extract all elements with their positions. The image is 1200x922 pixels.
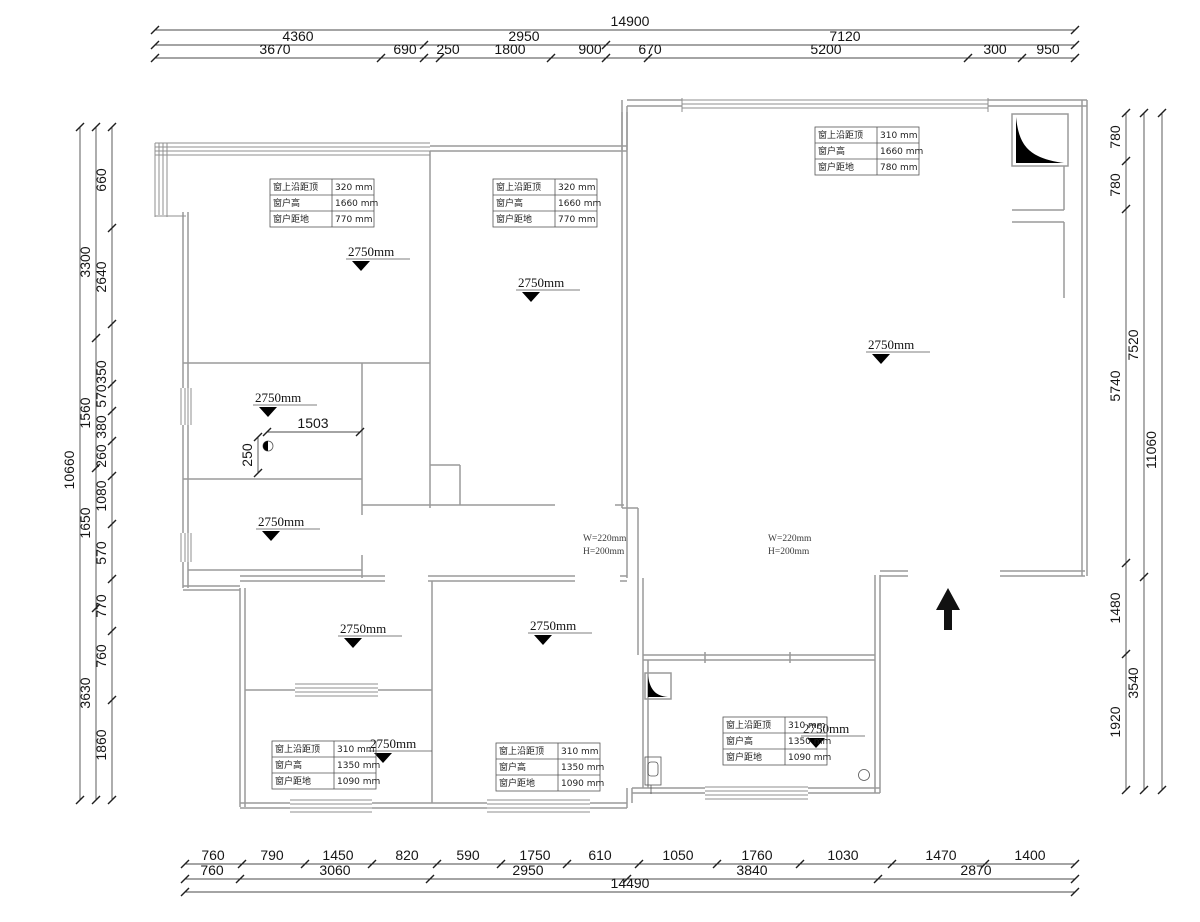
entry-side-wall [875, 575, 880, 793]
down-triangle-icon [872, 354, 890, 364]
table-row-value: 770 mm [335, 215, 373, 225]
ceiling-height-label: 2750mm [518, 275, 564, 290]
down-triangle-icon [534, 635, 552, 645]
dim-label: 350 [93, 360, 109, 384]
ceiling-height-label: 2750mm [370, 736, 416, 751]
dim-label: 2950 [512, 862, 543, 878]
table-row-value: 1660 mm [880, 147, 923, 157]
table-row-value: 310 mm [880, 131, 918, 141]
dim-label: 7520 [1125, 329, 1141, 360]
dim-label: 250 [239, 443, 255, 467]
floor-plan-canvas: 1490043602950712036706902501800900670520… [0, 0, 1200, 922]
table-row-value: 1660 mm [335, 199, 378, 209]
floor-plan-drawing: 1490043602950712036706902501800900670520… [0, 0, 1200, 922]
table-row-label: 窗户高 [496, 197, 523, 209]
table-row-label: 窗上沿距顶 [499, 745, 544, 757]
room-f-glass-divider [295, 684, 378, 696]
table-row-label: 窗上沿距顶 [275, 743, 320, 755]
beam-size-label: W=220mmH=200mm [583, 534, 627, 557]
dim-label: 1050 [662, 847, 693, 863]
table-row-label: 窗户高 [726, 735, 753, 747]
dim-chain-room-d-width: 1503 [263, 415, 364, 436]
top-middle-wall [430, 146, 627, 151]
corner-wedge-icon [648, 676, 668, 697]
dim-chain-top-detail: 367069025018009006705200300950 [151, 41, 1079, 62]
dim-label: 250 [436, 41, 460, 57]
ceiling-height-marker: 2750mm [866, 337, 930, 364]
ceiling-height-marker: 2750mm [368, 736, 432, 763]
dim-label: 3540 [1125, 667, 1141, 698]
datum-point-marker [263, 441, 273, 451]
living-room-top-window [682, 98, 988, 112]
table-row-label: 窗户距地 [275, 775, 311, 787]
dim-label: 14900 [611, 13, 650, 29]
right-exterior-wall [1082, 100, 1087, 576]
living-lower-left-wall [638, 578, 643, 655]
dim-label: 3300 [77, 246, 93, 277]
dim-label: 1470 [925, 847, 956, 863]
table-row-label: 窗户高 [273, 197, 300, 209]
ceiling-height-marker: 2750mm [338, 621, 402, 648]
dim-label: 570 [93, 541, 109, 565]
dim-chain-bottom-overall: 14490 [181, 875, 1079, 896]
window-spec-table: 窗上沿距顶310 mm窗户高1660 mm窗户距地780 mm [815, 127, 923, 175]
dim-chain-room-d-offset: 250 [239, 433, 262, 477]
datum-half-fill [263, 441, 268, 451]
dim-label: 570 [93, 384, 109, 408]
dim-label: 1503 [297, 415, 328, 431]
dim-label: 660 [93, 168, 109, 192]
dim-label: 3670 [259, 41, 290, 57]
dim-label: 1080 [93, 480, 109, 511]
corner-wedge-symbol [645, 673, 671, 699]
ceiling-height-label: 2750mm [868, 337, 914, 352]
bottom-left-room-left-wall [240, 588, 245, 807]
dim-label: 950 [1036, 41, 1060, 57]
beam-size-text: W=220mm [583, 534, 627, 544]
table-row-value: 1350 mm [561, 763, 604, 773]
dim-label: 3840 [736, 862, 767, 878]
dim-label: 1560 [77, 397, 93, 428]
dim-label: 3630 [77, 677, 93, 708]
dim-label: 5740 [1107, 370, 1123, 401]
dim-label: 11060 [1143, 431, 1159, 469]
table-row-label: 窗户距地 [726, 751, 762, 763]
table-row-label: 窗户高 [275, 759, 302, 771]
dim-label: 5200 [810, 41, 841, 57]
window-spec-table: 窗上沿距顶310 mm窗户高1350 mm窗户距地1090 mm [496, 743, 604, 791]
door-stop-circle [859, 770, 870, 781]
room-g-bottom-window [487, 800, 590, 812]
table-row-value: 320 mm [335, 183, 373, 193]
table-row-label: 窗户高 [818, 145, 845, 157]
dim-label: 670 [638, 41, 662, 57]
dim-label: 1650 [77, 507, 93, 538]
ceiling-height-label: 2750mm [340, 621, 386, 636]
window-spec-table: 窗上沿距顶310 mm窗户高1350 mm窗户距地1090 mm [272, 741, 380, 789]
beam-size-label: W=220mmH=200mm [768, 534, 812, 557]
ceiling-height-marker: 2750mm [256, 514, 320, 541]
dim-label: 2870 [960, 862, 991, 878]
table-row-label: 窗户距地 [496, 213, 532, 225]
table-row-label: 窗上沿距顶 [726, 719, 771, 731]
dim-label: 14490 [611, 875, 650, 891]
ceiling-height-label: 2750mm [348, 244, 394, 259]
dim-label: 1920 [1107, 706, 1123, 737]
table-row-value: 1350 mm [337, 761, 380, 771]
dim-label: 760 [201, 847, 225, 863]
ceiling-height-marker: 2750mm [528, 618, 592, 645]
left-step-wall [183, 586, 240, 590]
dim-label: 1450 [322, 847, 353, 863]
beam-size-text: H=200mm [768, 547, 810, 557]
window-spec-table: 窗上沿距顶310 mm窗户高1350 mm窗户距地1090 mm [723, 717, 831, 765]
window-spec-table: 窗上沿距顶320 mm窗户高1660 mm窗户距地770 mm [493, 179, 601, 227]
symbol-layer [263, 114, 1068, 794]
down-triangle-icon [352, 261, 370, 271]
flue-niche-walls [1012, 166, 1064, 298]
table-row-label: 窗上沿距顶 [273, 181, 318, 193]
room-f-bottom-window [290, 800, 372, 812]
dim-label: 780 [1107, 173, 1123, 197]
duct-notch [430, 465, 460, 505]
dim-label: 790 [260, 847, 284, 863]
room-b-c-partition [622, 112, 627, 508]
top-right-room-top-wall [627, 100, 1087, 106]
dim-label: 820 [395, 847, 419, 863]
ceiling-height-marker: 2750mm [516, 275, 580, 302]
left-window-lower [181, 533, 191, 562]
table-row-value: 1090 mm [561, 779, 604, 789]
dim-label: 1030 [827, 847, 858, 863]
table-row-value: 780 mm [880, 163, 918, 173]
table-row-value: 320 mm [558, 183, 596, 193]
ceiling-height-marker: 2750mm [253, 390, 317, 417]
dim-label: 1860 [93, 729, 109, 760]
dim-label: 900 [578, 41, 602, 57]
dim-label: 1400 [1014, 847, 1045, 863]
drain-inner [648, 762, 658, 776]
bottom-right-room-top-wall [643, 652, 875, 663]
dim-label: 1480 [1107, 592, 1123, 623]
table-row-value: 1660 mm [558, 199, 601, 209]
dim-label: 1760 [741, 847, 772, 863]
down-triangle-icon [262, 531, 280, 541]
dim-label: 10660 [61, 450, 77, 489]
table-row-label: 窗户距地 [499, 777, 535, 789]
entry-direction-arrow-icon [936, 588, 960, 630]
dim-label: 780 [1107, 125, 1123, 149]
table-row-value: 1090 mm [788, 753, 831, 763]
dim-label: 610 [588, 847, 612, 863]
dim-label: 260 [93, 444, 109, 468]
table-row-value: 310 mm [561, 747, 599, 757]
wall-layer [183, 100, 1087, 808]
dim-label: 380 [93, 415, 109, 439]
table-row-label: 窗户高 [499, 761, 526, 773]
left-window-upper [181, 388, 191, 425]
dim-label: 1750 [519, 847, 550, 863]
dim-chain-right-overall: 11060 [1143, 109, 1166, 794]
beam-size-text: H=200mm [583, 547, 625, 557]
dim-label: 300 [983, 41, 1007, 57]
dim-chain-bottom-detail: 7607901450820590175061010501760103014701… [181, 847, 1079, 868]
dim-label: 3060 [319, 862, 350, 878]
dim-label: 1800 [494, 41, 525, 57]
table-row-label: 窗户距地 [273, 213, 309, 225]
flue-wedge-icon [1016, 117, 1064, 163]
table-row-value: 310 mm [337, 745, 375, 755]
table-row-value: 770 mm [558, 215, 596, 225]
entry-bottom-wall [880, 571, 1085, 576]
down-triangle-icon [522, 292, 540, 302]
table-row-label: 窗上沿距顶 [818, 129, 863, 141]
down-triangle-icon [344, 638, 362, 648]
down-triangle-icon [259, 407, 277, 417]
bottom-rooms-top-wall [240, 576, 627, 581]
ceiling-height-marker: 2750mm [346, 244, 410, 271]
room-h-bottom-window [705, 787, 808, 799]
beam-size-text: W=220mm [768, 534, 812, 544]
dim-label: 2640 [93, 261, 109, 292]
flue-corner-symbol [1012, 114, 1068, 166]
ceiling-height-label: 2750mm [255, 390, 301, 405]
dim-label: 760 [93, 644, 109, 668]
dim-label: 590 [456, 847, 480, 863]
dim-label: 690 [393, 41, 417, 57]
bottom-step-wall [627, 788, 632, 808]
table-row-label: 窗户距地 [818, 161, 854, 173]
table-row-value: 1350 mm [788, 737, 831, 747]
ceiling-height-label: 2750mm [530, 618, 576, 633]
table-row-value: 310 mm [788, 721, 826, 731]
ceiling-height-label: 2750mm [258, 514, 304, 529]
table-row-label: 窗上沿距顶 [496, 181, 541, 193]
window-spec-table: 窗上沿距顶320 mm窗户高1660 mm窗户距地770 mm [270, 179, 378, 227]
dim-label: 760 [200, 862, 224, 878]
dim-label: 770 [93, 594, 109, 618]
table-row-value: 1090 mm [337, 777, 380, 787]
